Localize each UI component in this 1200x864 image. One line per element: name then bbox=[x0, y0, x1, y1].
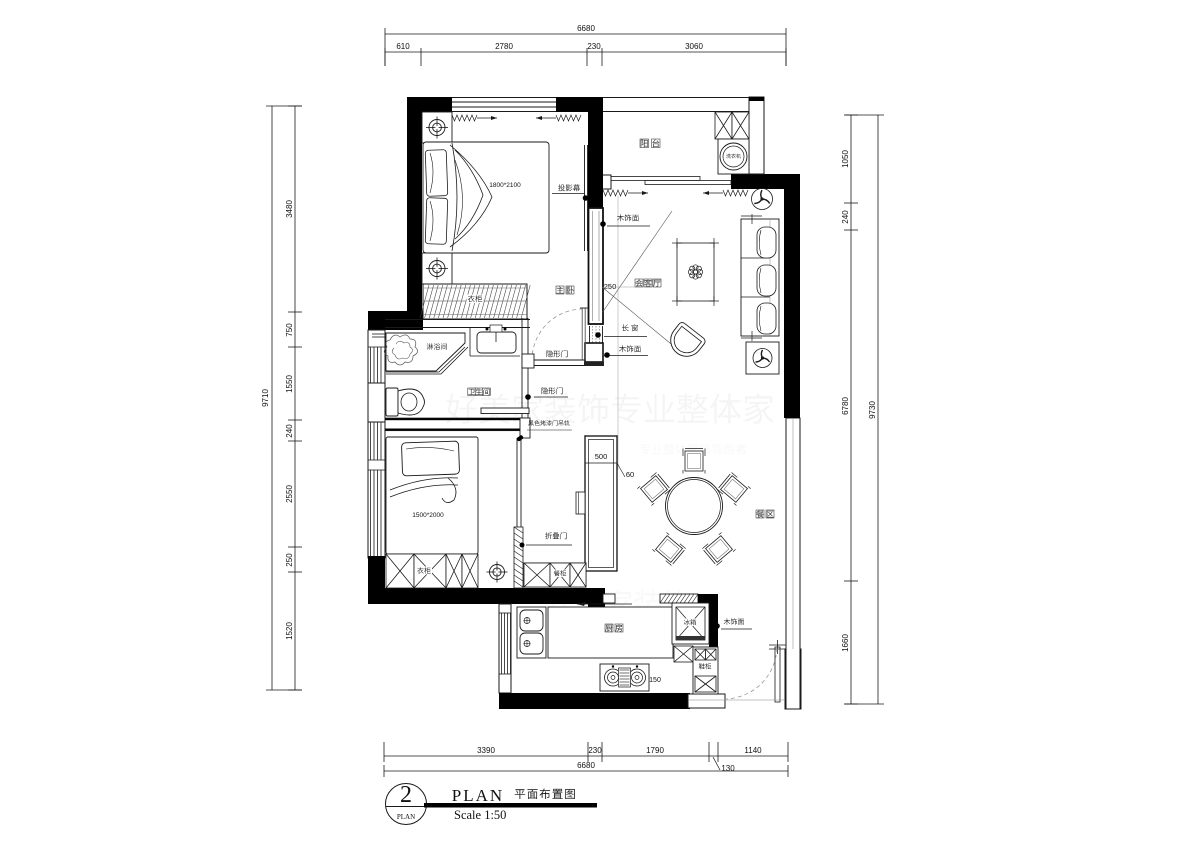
svg-text:1550: 1550 bbox=[285, 375, 294, 393]
svg-text:9710: 9710 bbox=[261, 389, 270, 407]
svg-text:3390: 3390 bbox=[477, 746, 495, 755]
svg-text:1050: 1050 bbox=[841, 150, 850, 168]
svg-text:1800*2100: 1800*2100 bbox=[489, 182, 521, 189]
svg-text:240: 240 bbox=[841, 210, 850, 224]
svg-text:1520: 1520 bbox=[285, 622, 294, 640]
svg-text:610: 610 bbox=[396, 42, 410, 51]
svg-text:2780: 2780 bbox=[495, 42, 513, 51]
svg-text:3060: 3060 bbox=[685, 42, 703, 51]
svg-text:3480: 3480 bbox=[285, 200, 294, 218]
svg-text:Scale 1:50: Scale 1:50 bbox=[454, 808, 506, 822]
svg-text:1790: 1790 bbox=[646, 746, 664, 755]
svg-text:PLAN: PLAN bbox=[397, 813, 415, 821]
svg-text:6680: 6680 bbox=[577, 761, 595, 770]
svg-text:9730: 9730 bbox=[868, 401, 877, 419]
svg-text:1660: 1660 bbox=[841, 634, 850, 652]
svg-text:240: 240 bbox=[285, 424, 294, 438]
svg-text:150: 150 bbox=[649, 677, 661, 684]
svg-text:2: 2 bbox=[400, 782, 412, 808]
svg-text:130: 130 bbox=[721, 764, 735, 773]
svg-text:500: 500 bbox=[595, 452, 608, 461]
svg-text:2550: 2550 bbox=[285, 485, 294, 503]
svg-text:60: 60 bbox=[626, 470, 634, 479]
svg-text:6780: 6780 bbox=[841, 397, 850, 415]
svg-text:1500*2000: 1500*2000 bbox=[412, 512, 444, 519]
svg-text:6680: 6680 bbox=[577, 24, 595, 33]
svg-text:1140: 1140 bbox=[744, 746, 762, 755]
svg-text:PLAN: PLAN bbox=[452, 786, 504, 805]
svg-text:230: 230 bbox=[587, 42, 601, 51]
svg-text:230: 230 bbox=[588, 746, 602, 755]
svg-text:750: 750 bbox=[285, 323, 294, 337]
svg-text:250: 250 bbox=[285, 553, 294, 567]
